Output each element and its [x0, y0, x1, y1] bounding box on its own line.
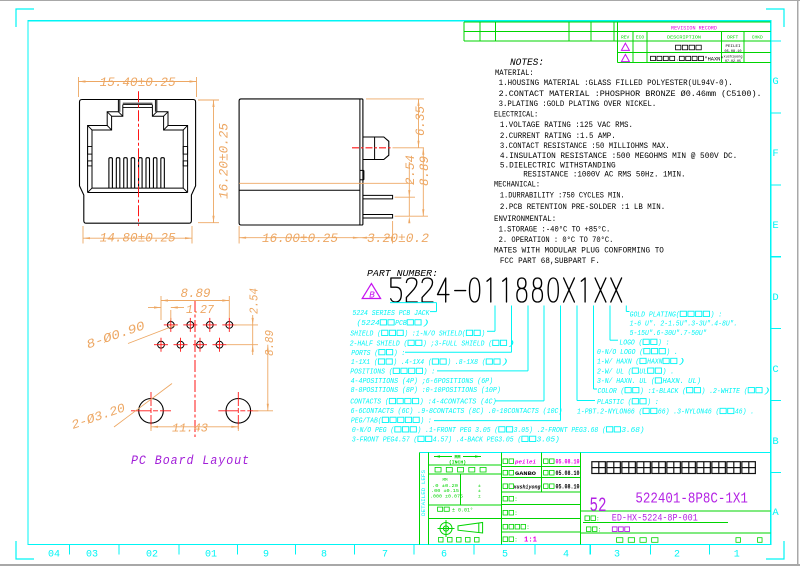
- svg-text:PEILEI: PEILEI: [726, 45, 741, 49]
- svg-text:2-HALF SHIELD (: 2-HALF SHIELD (: [350, 341, 408, 349]
- svg-text:) :: ) :: [711, 312, 723, 320]
- svg-text:1.HOUSING MATERIAL :GLASS FILL: 1.HOUSING MATERIAL :GLASS FILLED POLYEST…: [499, 79, 733, 88]
- svg-text:6: 6: [441, 550, 447, 561]
- svg-text:G: G: [772, 76, 778, 88]
- svg-text:.: .: [676, 56, 679, 63]
- svg-text:8.89: 8.89: [417, 156, 432, 186]
- svg-text:B: B: [369, 290, 375, 301]
- svg-text:B: B: [772, 436, 778, 448]
- svg-text:4.57) .4-BACK PEG3.05 (: 4.57) .4-BACK PEG3.05 (: [433, 437, 522, 445]
- svg-text:1-6 U". 2-1.5U".3-3U".4-8U".: 1-6 U". 2-1.5U".3-3U".4-8U".: [630, 321, 738, 329]
- svg-text:) .: ) .: [666, 349, 678, 357]
- svg-text:(INCH): (INCH): [449, 460, 466, 466]
- svg-text:): ): [678, 359, 686, 367]
- svg-text:3.05): 3.05): [537, 437, 560, 445]
- svg-text:9: 9: [263, 550, 269, 561]
- svg-text:ENVIRONMENTAL:: ENVIRONMENTAL:: [494, 215, 556, 224]
- svg-text:DETAILED LEFS: DETAILED LEFS: [421, 470, 427, 516]
- svg-text:F: F: [772, 148, 778, 160]
- svg-text:1-1X1 (: 1-1X1 (: [351, 359, 378, 367]
- svg-text:PORTS (: PORTS (: [351, 350, 378, 358]
- svg-text:PC Board Layout: PC Board Layout: [131, 454, 250, 468]
- svg-text:) :: ) :: [647, 399, 659, 407]
- svg-text:6-6CONTACTS (6C) .9-8CONTACTS: 6-6CONTACTS (6C) .9-8CONTACTS (8C) .0-10…: [351, 408, 563, 416]
- svg-text:DRFT: DRFT: [727, 35, 738, 41]
- svg-text:MATES WITH MODULAR PLUG CONFOR: MATES WITH MODULAR PLUG CONFORMING TO: [494, 247, 664, 256]
- svg-text:5-15U".6-30U".7-50U": 5-15U".6-30U".7-50U": [630, 330, 707, 338]
- svg-text:46) .: 46) .: [735, 409, 754, 417]
- svg-text:15.40±0.25: 15.40±0.25: [100, 75, 176, 90]
- svg-text:0-N/O PEG (: 0-N/O PEG (: [352, 427, 394, 435]
- svg-text:14.80±0.25: 14.80±0.25: [100, 231, 176, 246]
- svg-text:4-4POSITIONS (4P) ;6-6POSITION: 4-4POSITIONS (4P) ;6-6POSITIONS (6P): [351, 378, 494, 386]
- svg-text:2. OPERATION : 0°C TO 70°C.: 2. OPERATION : 0°C TO 70°C.: [499, 236, 614, 245]
- svg-text:07.02.05: 07.02.05: [725, 60, 742, 64]
- svg-text:±: ±: [478, 494, 481, 500]
- svg-text:DESCRIPTION: DESCRIPTION: [667, 35, 701, 41]
- svg-text:11.43: 11.43: [172, 421, 208, 435]
- svg-text:1.DURRABILITY :750 CYCLES MIN.: 1.DURRABILITY :750 CYCLES MIN.: [500, 192, 625, 201]
- svg-text:02: 02: [146, 550, 158, 561]
- svg-text:522401-8P8C-1X1: 522401-8P8C-1X1: [635, 492, 748, 508]
- svg-text:4.INSULATION RESISTANCE :500 M: 4.INSULATION RESISTANCE :500 MEGOHMS MIN…: [500, 152, 737, 161]
- svg-text:LOGO (: LOGO (: [619, 340, 642, 348]
- svg-text:) :: ) :: [658, 340, 670, 348]
- svg-text:ECO: ECO: [636, 35, 645, 41]
- svg-text:3.PLATING :GOLD PLATING OVER N: 3.PLATING :GOLD PLATING OVER NICKEL.: [499, 100, 657, 109]
- svg-text::: :: [527, 524, 530, 531]
- svg-text:SHIELD (: SHIELD (: [350, 331, 381, 339]
- svg-text:8.89: 8.89: [181, 287, 211, 301]
- svg-text:) :1-N/O SHIELD(: ) :1-N/O SHIELD(: [404, 331, 466, 339]
- svg-text:05.08.10: 05.08.10: [556, 470, 580, 477]
- svg-text:5.DIELECTRIC WITHSTANDING: 5.DIELECTRIC WITHSTANDING: [500, 162, 616, 171]
- svg-text:05.08.10: 05.08.10: [556, 459, 580, 466]
- svg-text:.00 ±0.15: .00 ±0.15: [431, 489, 459, 494]
- svg-text:): ): [422, 320, 430, 328]
- svg-text:D: D: [772, 292, 778, 304]
- svg-text:(5224: (5224: [357, 320, 380, 328]
- svg-text:xushiyong: xushiyong: [724, 55, 743, 60]
- svg-text:MATERIAL:: MATERIAL:: [495, 69, 534, 78]
- svg-text:8.89: 8.89: [263, 330, 277, 356]
- svg-text:peilei: peilei: [514, 459, 536, 466]
- svg-text:NOTES:: NOTES:: [510, 57, 544, 69]
- svg-text:66) .3-NYLON46 (: 66) .3-NYLON46 (: [658, 409, 720, 417]
- svg-text:PCB: PCB: [395, 320, 407, 328]
- svg-text:A: A: [772, 507, 779, 519]
- svg-text:REVISION RECORD: REVISION RECORD: [671, 25, 717, 31]
- svg-text:): ): [481, 331, 485, 339]
- svg-text:05.08.10: 05.08.10: [725, 50, 743, 54]
- svg-text:3.68): 3.68): [621, 427, 644, 435]
- svg-text:.000 ±0.075: .000 ±0.075: [430, 495, 463, 500]
- svg-text:PEG/TAB(: PEG/TAB(: [351, 418, 382, 426]
- svg-text:3.05) .2-FRONT PEG3.68 (: 3.05) .2-FRONT PEG3.68 (: [514, 427, 606, 435]
- svg-text:E: E: [772, 220, 778, 232]
- svg-text:05.08.10: 05.08.10: [556, 484, 580, 491]
- svg-text:0-N/O LOGO (: 0-N/O LOGO (: [597, 349, 643, 357]
- svg-text:1.STORAGE :-40°C TO +85°C.: 1.STORAGE :-40°C TO +85°C.: [499, 226, 611, 235]
- svg-text:8: 8: [321, 550, 327, 561]
- svg-text:POSITIONS (: POSITIONS (: [350, 369, 392, 377]
- svg-text:1:1: 1:1: [524, 537, 537, 545]
- svg-text:): ): [501, 359, 509, 367]
- svg-text:03: 03: [86, 550, 98, 561]
- svg-text:COLOR (: COLOR (: [598, 388, 625, 396]
- svg-text::: :: [515, 510, 518, 517]
- svg-text:xushiyong: xushiyong: [513, 484, 542, 491]
- svg-text:) .4-1X4 (: ) .4-1X4 (: [393, 359, 432, 367]
- svg-text:2.54: 2.54: [403, 155, 418, 185]
- svg-text:2.CURRENT RATING :1.5 AMP.: 2.CURRENT RATING :1.5 AMP.: [500, 132, 616, 141]
- svg-text:1.27: 1.27: [186, 303, 215, 317]
- svg-text:) :1-BLACK (: ) :1-BLACK (: [640, 388, 686, 396]
- svg-text:3-FRONT PEG4.57 (: 3-FRONT PEG4.57 (: [352, 437, 418, 445]
- svg-text:ED-HX-5224-8P-001: ED-HX-5224-8P-001: [612, 514, 698, 525]
- svg-text:3.CONTACT RESISTANCE :50 MILLI: 3.CONTACT RESISTANCE :50 MILLIOHMS MAX.: [500, 142, 670, 151]
- svg-text:HAXN: HAXN: [647, 359, 663, 367]
- svg-text:04: 04: [48, 550, 60, 561]
- svg-text:) .2-WHITE (: ) .2-WHITE (: [702, 388, 748, 396]
- svg-text::: :: [515, 537, 518, 544]
- svg-text:3-N/ HAXN. UL (: 3-N/ HAXN. UL (: [597, 378, 655, 386]
- svg-text:) ;3-FULL SHIELD (: ) ;3-FULL SHIELD (: [423, 341, 492, 349]
- svg-text:REV: REV: [621, 35, 630, 41]
- svg-text:UL: UL: [639, 368, 647, 376]
- svg-text:) :: ) :: [394, 350, 406, 358]
- svg-text:CONTACTS (: CONTACTS (: [350, 399, 389, 407]
- svg-text:1-PBT.2-NYLON66 (: 1-PBT.2-NYLON66 (: [577, 409, 643, 417]
- svg-text:): ): [763, 388, 771, 396]
- svg-text:GANBO: GANBO: [515, 470, 537, 477]
- svg-text:FCC PART 68,SUBPART F.: FCC PART 68,SUBPART F.: [500, 257, 600, 266]
- svg-text:): ): [508, 341, 516, 349]
- svg-text:MM: MM: [454, 455, 460, 461]
- svg-text:"HAXN": "HAXN": [704, 56, 723, 63]
- svg-text:1.VOLTAGE RATING :125 VAC RMS.: 1.VOLTAGE RATING :125 VAC RMS.: [500, 121, 633, 130]
- svg-text:3: 3: [614, 550, 620, 561]
- svg-text:2.PCB RETENTION PRE-SOLDER :1: 2.PCB RETENTION PRE-SOLDER :1 LB MIN.: [500, 203, 665, 212]
- svg-text::: :: [596, 516, 599, 523]
- svg-text:±: ±: [478, 488, 481, 494]
- svg-text:GOLD PLATING(: GOLD PLATING(: [630, 312, 680, 320]
- svg-text:2-W/ UL (: 2-W/ UL (: [597, 368, 632, 376]
- svg-text:16.00±0.25: 16.00±0.25: [262, 231, 338, 246]
- svg-text:6.35: 6.35: [413, 106, 428, 136]
- svg-text:2: 2: [674, 550, 680, 561]
- svg-text:) :: ) :: [420, 418, 432, 426]
- svg-text:± 0.01°: ± 0.01°: [452, 507, 473, 513]
- svg-text::: :: [515, 496, 518, 503]
- svg-text:MECHANICAL:: MECHANICAL:: [494, 181, 540, 190]
- svg-text:RESISTANCE :1000V AC RMS 50Hz.: RESISTANCE :1000V AC RMS 50Hz. 1MIN.: [523, 171, 685, 180]
- svg-text:1: 1: [734, 550, 740, 561]
- svg-text:PLASTIC (: PLASTIC (: [597, 399, 632, 407]
- svg-text:) :: ) :: [424, 369, 436, 377]
- svg-text:) .: ) .: [663, 368, 675, 376]
- svg-text::: :: [598, 527, 601, 534]
- svg-text:3.20±0.2: 3.20±0.2: [367, 231, 429, 246]
- svg-text:) :4-4CONTACTS (4C): ) :4-4CONTACTS (4C): [420, 399, 497, 407]
- svg-text:C: C: [772, 364, 778, 376]
- svg-text:HAXN. UL): HAXN. UL): [663, 378, 702, 386]
- svg-text:5: 5: [502, 550, 508, 561]
- svg-text:4: 4: [563, 550, 569, 561]
- svg-text:5224 SERIES PCB JACK: 5224 SERIES PCB JACK: [353, 310, 431, 318]
- svg-text:01: 01: [205, 550, 217, 561]
- svg-text:ELECTRICAL:: ELECTRICAL:: [494, 111, 538, 120]
- svg-text:MM: MM: [442, 479, 448, 483]
- svg-text:1-W/ HAXN (: 1-W/ HAXN (: [597, 359, 639, 367]
- svg-text:) .1-FRONT PEG 3.05 (: ) .1-FRONT PEG 3.05 (: [417, 427, 498, 435]
- svg-text:CHKD: CHKD: [752, 35, 763, 41]
- svg-text:2.CONTACT MATERIAL :PHOSPHOR B: 2.CONTACT MATERIAL :PHOSPHOR BRONZE Ø0.4…: [499, 90, 762, 99]
- svg-text:16.20±0.25: 16.20±0.25: [217, 123, 232, 199]
- svg-text:8-8POSITIONS (8P) :0-10POSITIO: 8-8POSITIONS (8P) :0-10POSITIONS (10P): [351, 387, 501, 395]
- svg-text:) .8-1X8 (: ) .8-1X8 (: [447, 359, 486, 367]
- svg-text:7: 7: [382, 550, 388, 561]
- svg-text:2.54: 2.54: [248, 288, 262, 314]
